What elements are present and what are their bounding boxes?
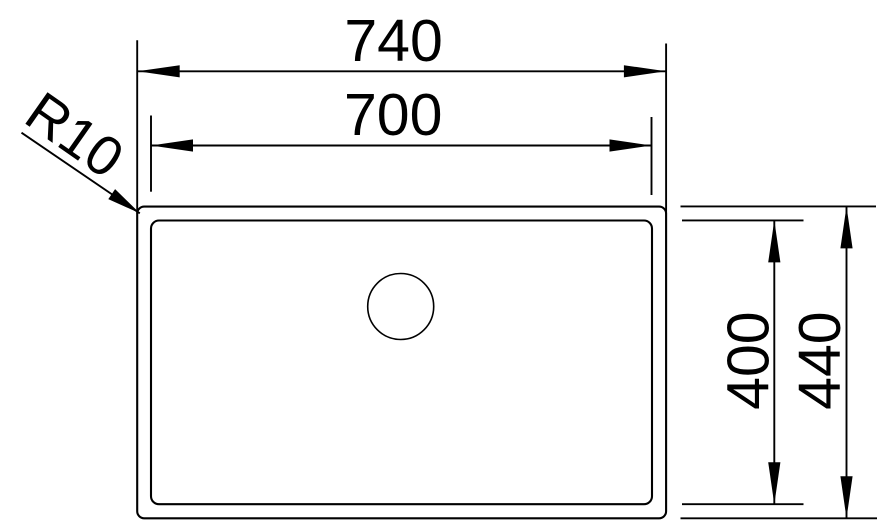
- svg-text:400: 400: [715, 311, 781, 409]
- svg-text:440: 440: [787, 311, 853, 409]
- svg-text:740: 740: [344, 8, 442, 74]
- svg-text:700: 700: [344, 82, 442, 148]
